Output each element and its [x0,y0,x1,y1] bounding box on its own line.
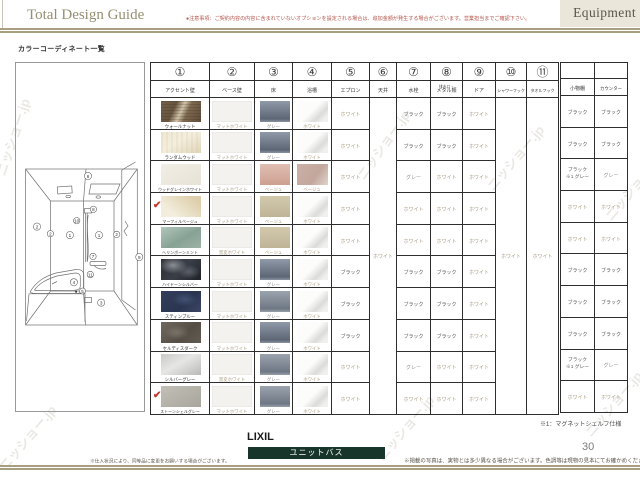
svg-text:1: 1 [98,233,101,238]
svg-text:6: 6 [87,174,90,179]
svg-text:8: 8 [92,207,95,212]
svg-text:3: 3 [100,300,103,305]
svg-text:10: 10 [74,219,80,224]
svg-text:9: 9 [138,255,141,260]
svg-text:2: 2 [115,232,118,237]
svg-text:2: 2 [49,232,52,237]
svg-text:11: 11 [88,272,93,277]
svg-text:5: 5 [81,289,84,294]
svg-text:7: 7 [92,254,95,259]
svg-text:1: 1 [69,233,72,238]
svg-text:4: 4 [73,280,76,285]
svg-text:2: 2 [36,224,39,229]
